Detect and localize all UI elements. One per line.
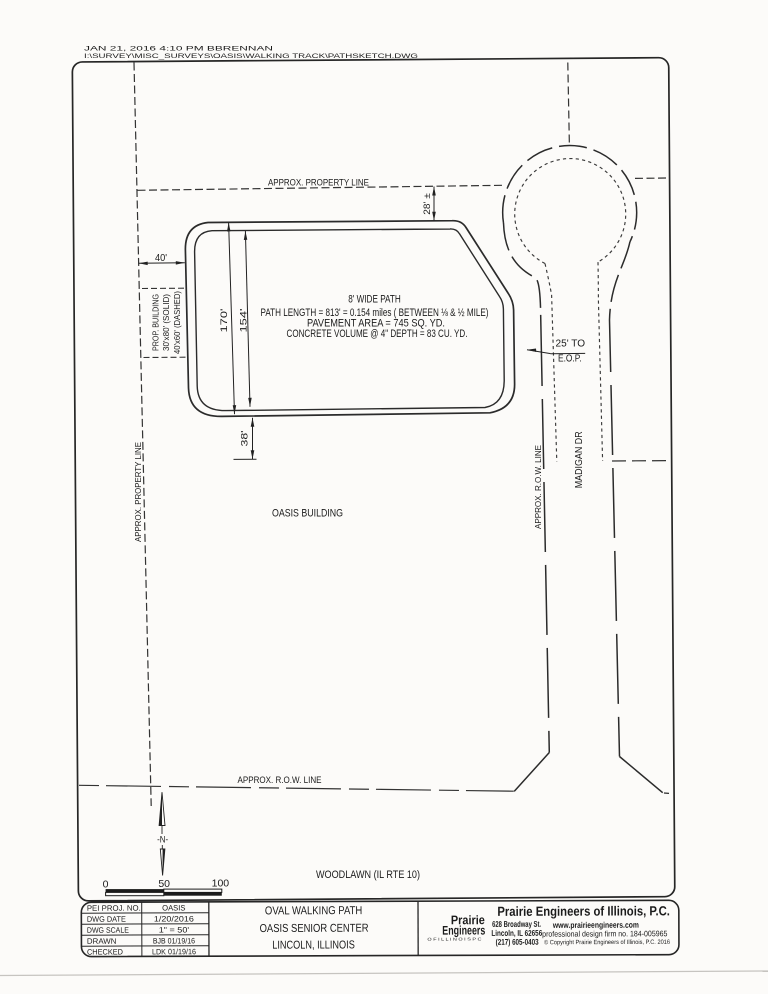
- svg-text:professional design firm no. 1: professional design firm no. 184-005965: [542, 929, 668, 938]
- svg-text:BJB 01/19/16: BJB 01/19/16: [153, 936, 195, 945]
- svg-text:DWG DATE: DWG DATE: [87, 915, 126, 924]
- svg-text:1/20/2016: 1/20/2016: [154, 914, 194, 923]
- svg-text:30'x80' (SOLID): 30'x80' (SOLID): [162, 294, 171, 351]
- svg-text:O F I L L I N O I S P C: O F I L L I N O I S P C: [427, 936, 481, 941]
- svg-text:PEI PROJ. NO.: PEI PROJ. NO.: [87, 904, 141, 913]
- svg-text:OVAL WALKING PATH: OVAL WALKING PATH: [265, 905, 362, 917]
- svg-text:170': 170': [219, 308, 230, 332]
- svg-text:38': 38': [240, 430, 251, 446]
- svg-text:28' ±: 28' ±: [422, 193, 433, 215]
- svg-text:8' WIDE PATH: 8' WIDE PATH: [348, 293, 401, 305]
- svg-text:LDK 01/19/16: LDK 01/19/16: [152, 947, 196, 956]
- svg-text:154': 154': [239, 308, 250, 332]
- svg-text:PROP. BUILDING: PROP. BUILDING: [152, 294, 161, 351]
- svg-text:www.prairieengineers.com: www.prairieengineers.com: [552, 920, 639, 930]
- svg-text:OASIS BUILDING: OASIS BUILDING: [272, 507, 343, 519]
- svg-text:25' TO: 25' TO: [556, 339, 586, 350]
- svg-text:OASIS SENIOR CENTER: OASIS SENIOR CENTER: [260, 923, 369, 935]
- svg-text:(217) 605-0403: (217) 605-0403: [496, 937, 539, 947]
- svg-text:Engineers: Engineers: [442, 923, 485, 937]
- svg-text:CONCRETE VOLUME @ 4" DEPTH = 8: CONCRETE VOLUME @ 4" DEPTH = 83 CU. YD.: [287, 328, 468, 340]
- svg-text:-N-: -N-: [157, 834, 168, 845]
- svg-text:I:\SURVEY\MISC_SURVEYS\OASIS\W: I:\SURVEY\MISC_SURVEYS\OASIS\WALKING TRA…: [84, 53, 418, 60]
- svg-text:E.O.P.: E.O.P.: [558, 353, 582, 364]
- svg-text:APPROX. PROPERTY LINE: APPROX. PROPERTY LINE: [268, 178, 369, 189]
- svg-text:APPROX. PROPERTY LINE: APPROX. PROPERTY LINE: [133, 442, 143, 542]
- svg-text:OASIS: OASIS: [162, 903, 185, 912]
- svg-text:APPROX. R.O.W. LINE: APPROX. R.O.W. LINE: [238, 775, 322, 785]
- svg-text:50: 50: [158, 878, 170, 890]
- svg-text:APPROX. R.O.W. LINE: APPROX. R.O.W. LINE: [533, 445, 543, 529]
- svg-text:0: 0: [103, 878, 109, 890]
- svg-text:DWG SCALE: DWG SCALE: [87, 926, 129, 935]
- svg-text:100: 100: [212, 877, 230, 889]
- svg-text:© Copyright Prairie Engineer: © Copyright Prairie Engineers of Illinoi…: [544, 939, 671, 946]
- svg-text:MADIGAN DR: MADIGAN DR: [574, 431, 585, 488]
- svg-text:1" = 50': 1" = 50': [159, 925, 190, 934]
- svg-text:Prairie Engineers of Illinois,: Prairie Engineers of Illinois, P.C.: [497, 903, 670, 919]
- svg-text:JAN 21, 2016 4:10 PM BBRENNAN: JAN 21, 2016 4:10 PM BBRENNAN: [84, 45, 274, 52]
- svg-text:CHECKED: CHECKED: [87, 947, 123, 956]
- svg-text:40': 40': [155, 252, 167, 264]
- svg-text:40'x60' (DASHED): 40'x60' (DASHED): [173, 291, 182, 354]
- svg-text:WOODLAWN (IL RTE 10): WOODLAWN (IL RTE 10): [316, 869, 420, 881]
- svg-text:DRAWN: DRAWN: [87, 937, 117, 946]
- svg-text:LINCOLN, ILLINOIS: LINCOLN, ILLINOIS: [272, 939, 355, 951]
